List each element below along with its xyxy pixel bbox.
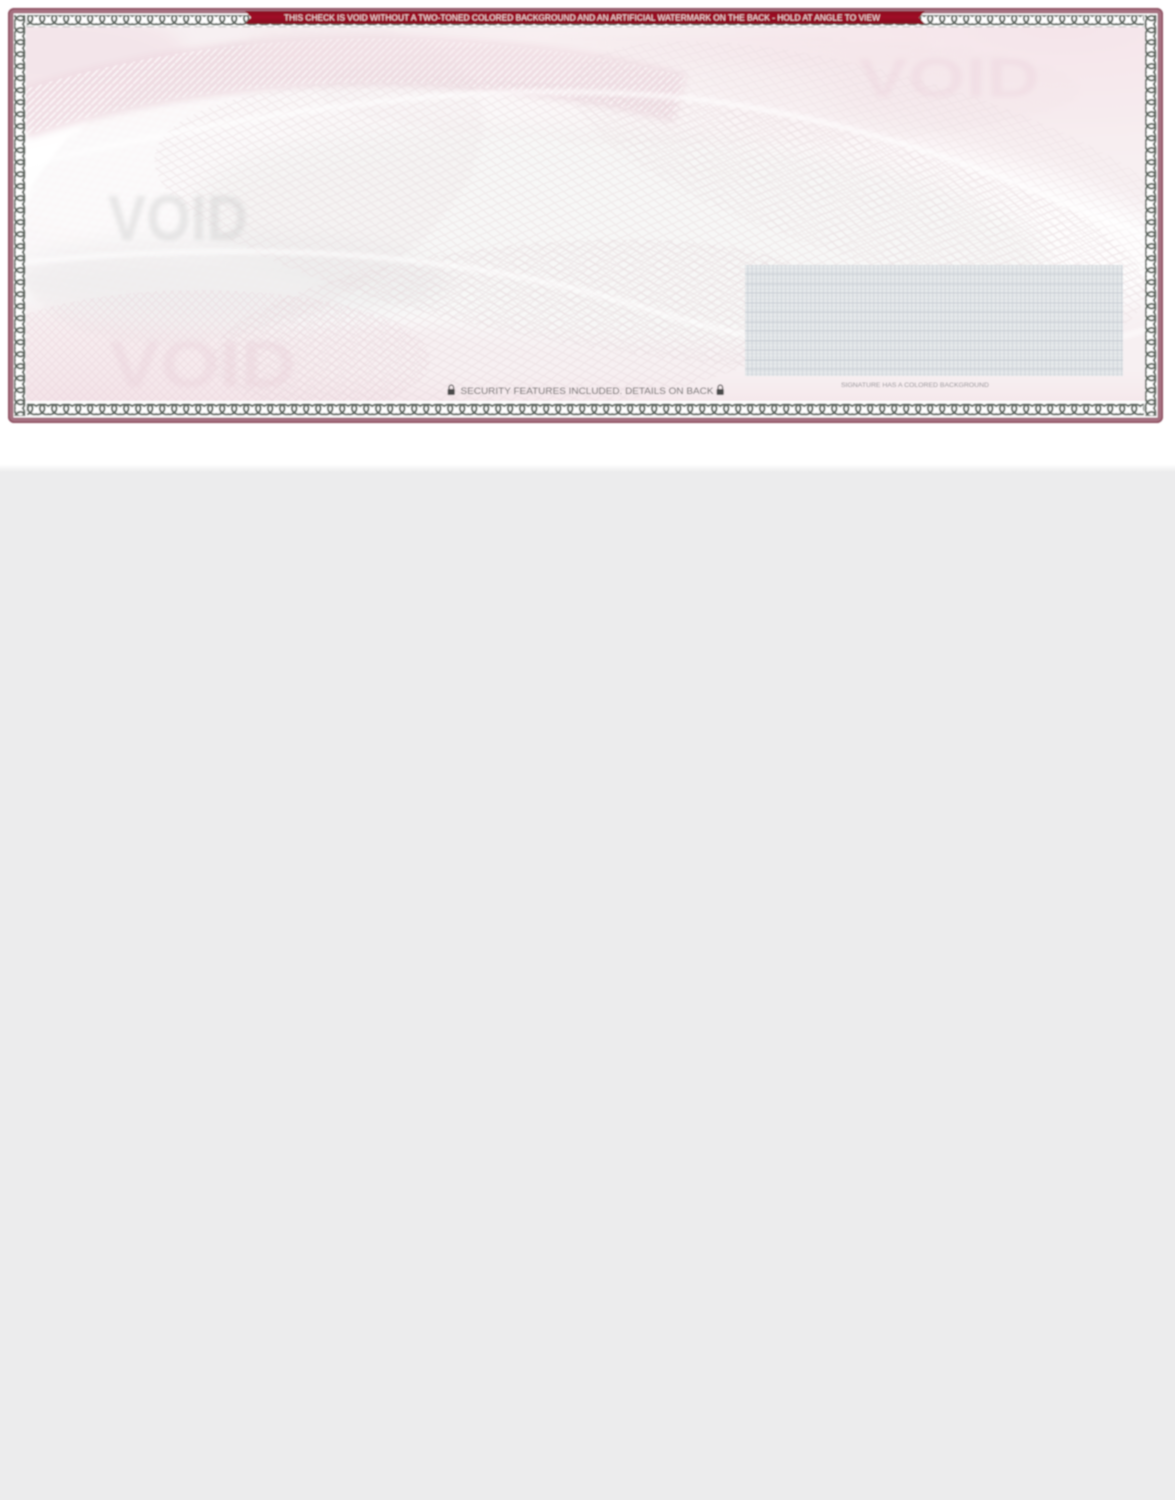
svg-text:VOID: VOID — [109, 327, 296, 401]
svg-text:SIGNATURE HAS A COLORED BACKGR: SIGNATURE HAS A COLORED BACKGROUND — [841, 382, 989, 389]
svg-text:VOID: VOID — [108, 182, 248, 254]
svg-text:THIS CHECK IS VOID WITHOUT A T: THIS CHECK IS VOID WITHOUT A TWO-TONED C… — [284, 14, 881, 23]
svg-text:SECURITY FEATURES INCLUDED. DE: SECURITY FEATURES INCLUDED. DETAILS ON B… — [461, 386, 714, 396]
svg-text:VOID: VOID — [858, 46, 1040, 109]
